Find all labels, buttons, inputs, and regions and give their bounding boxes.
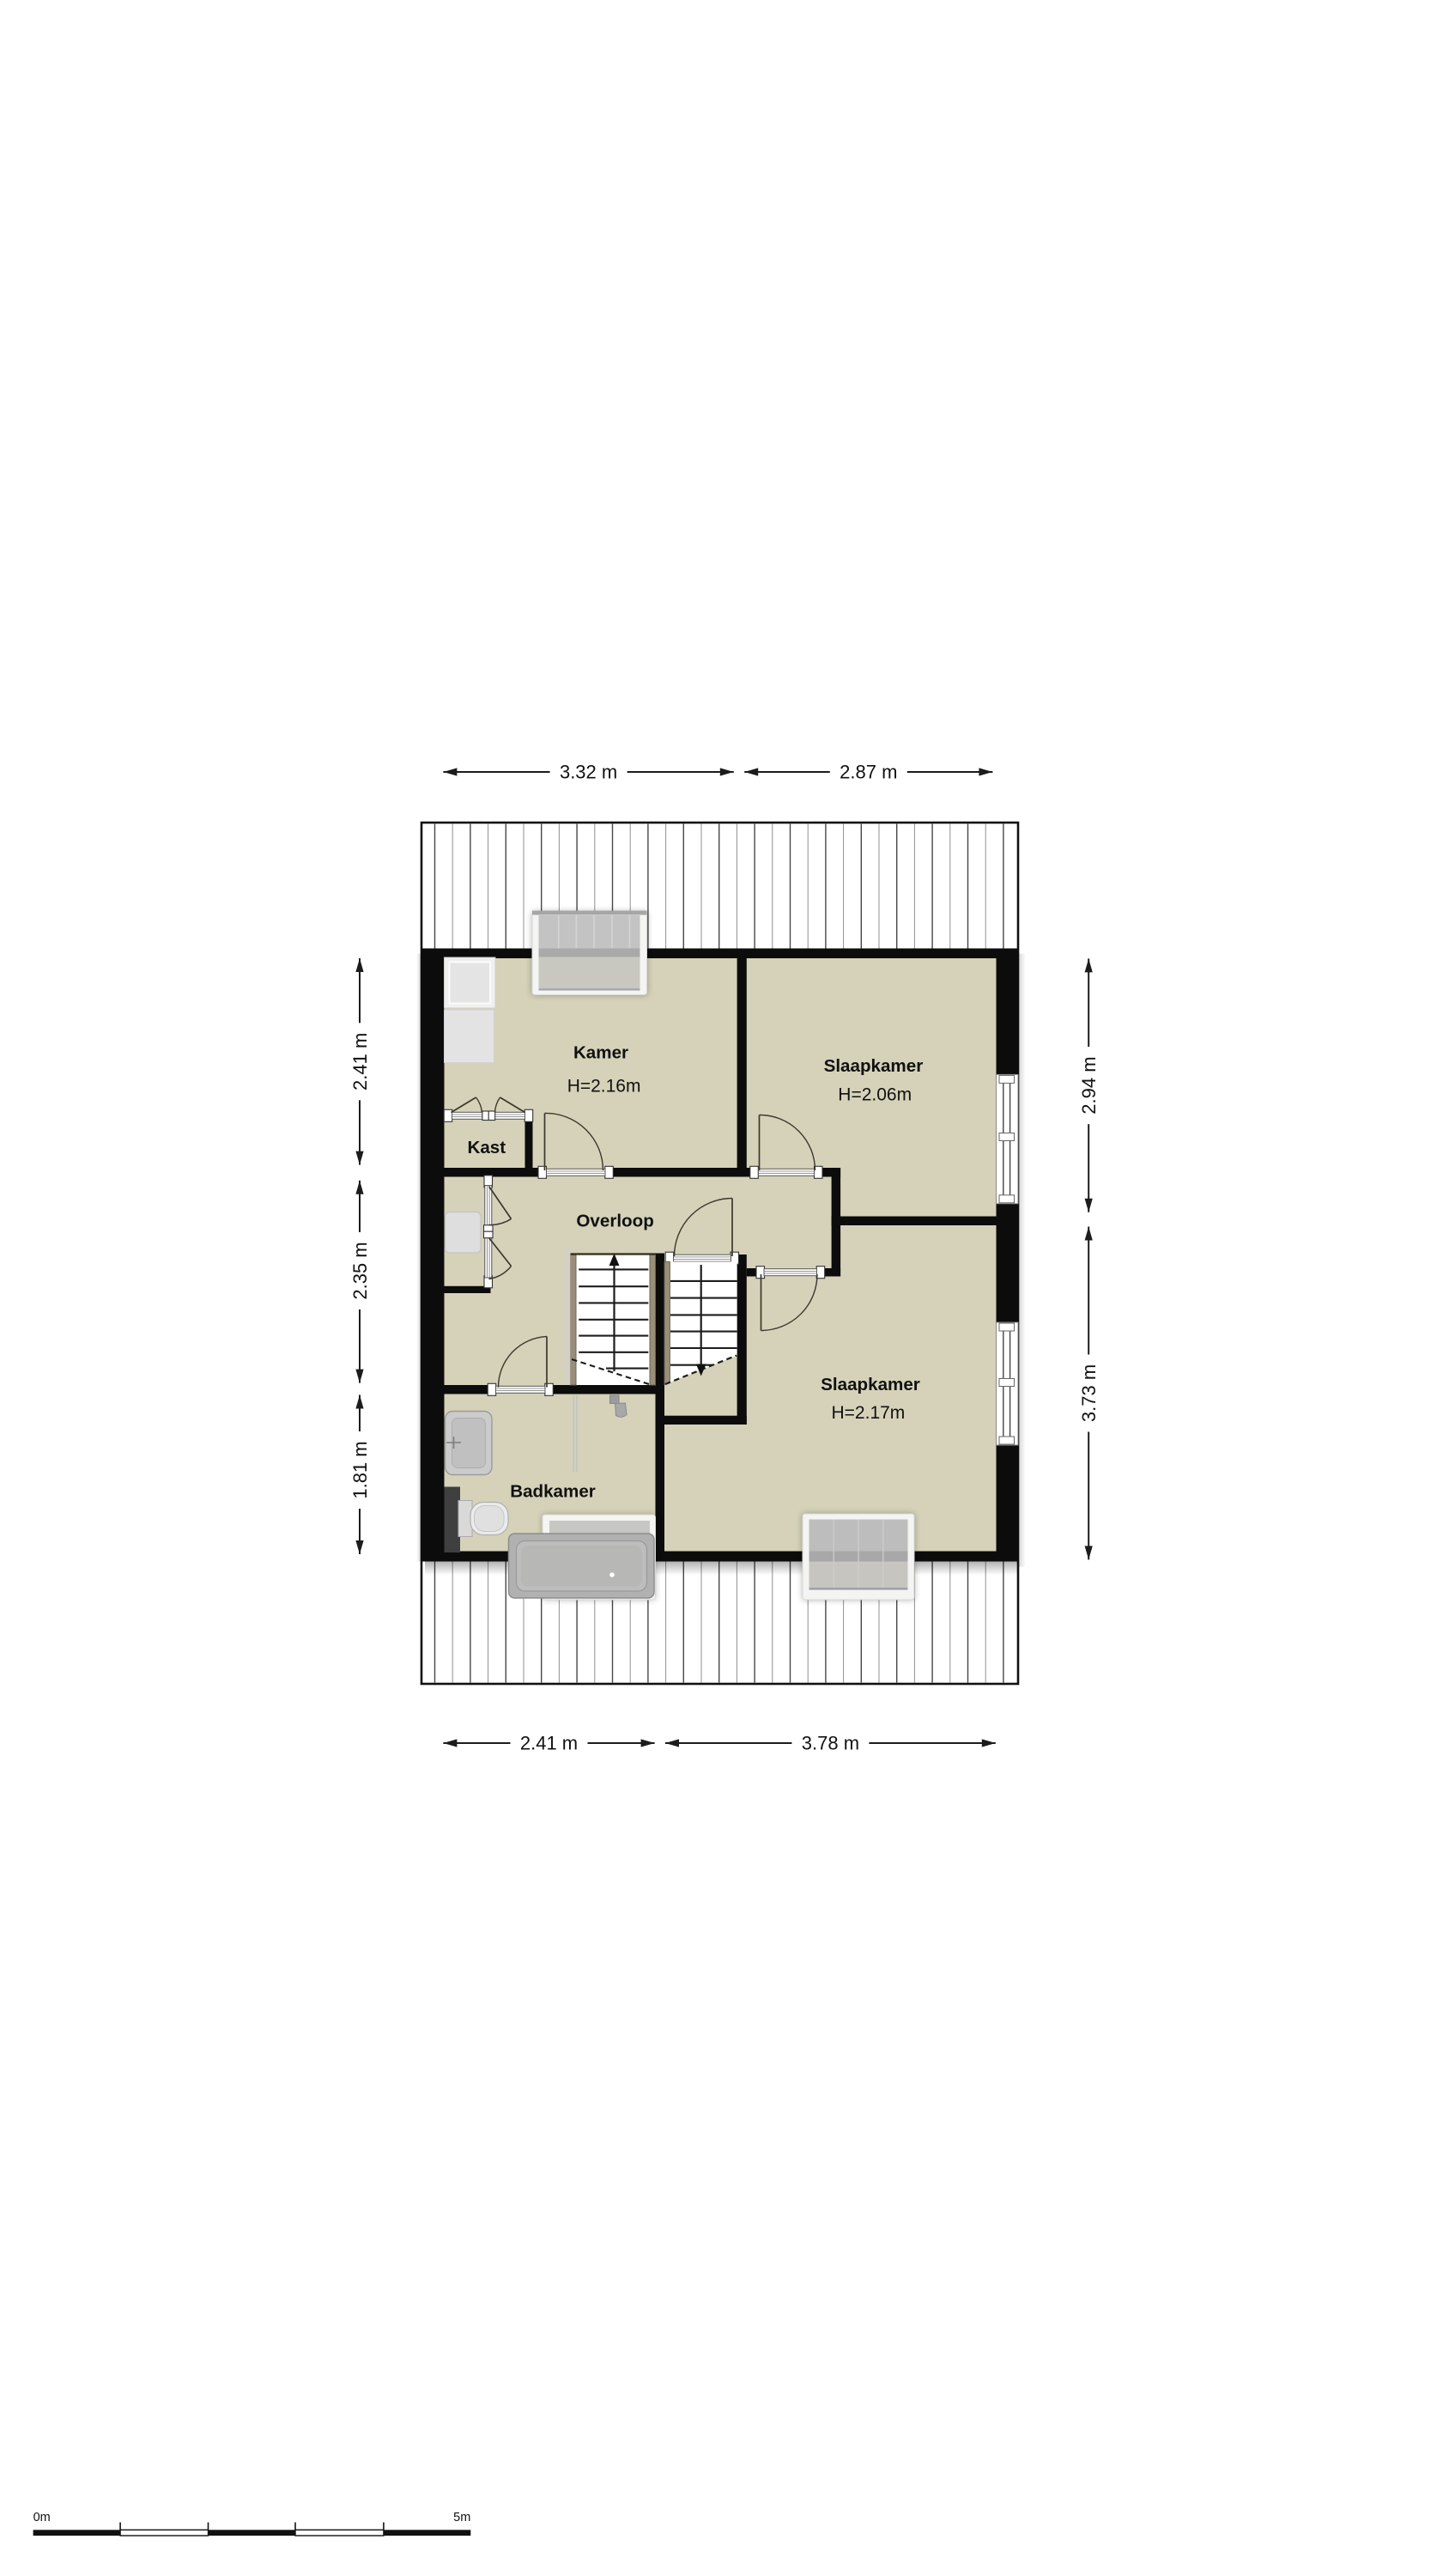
svg-text:Overloop: Overloop xyxy=(576,1212,653,1231)
svg-text:Kast: Kast xyxy=(467,1138,506,1157)
svg-text:H=2.17m: H=2.17m xyxy=(832,1403,906,1423)
svg-text:3.73 m: 3.73 m xyxy=(1078,1364,1100,1422)
svg-text:Badkamer: Badkamer xyxy=(510,1482,596,1502)
svg-text:3.32 m: 3.32 m xyxy=(560,762,617,783)
svg-text:0m: 0m xyxy=(33,2511,51,2524)
svg-text:Slaapkamer: Slaapkamer xyxy=(821,1375,920,1394)
svg-text:H=2.06m: H=2.06m xyxy=(838,1085,912,1105)
svg-text:1.81 m: 1.81 m xyxy=(349,1441,371,1498)
svg-text:2.41 m: 2.41 m xyxy=(349,1033,371,1091)
svg-text:Kamer: Kamer xyxy=(573,1043,628,1063)
svg-text:2.35 m: 2.35 m xyxy=(349,1242,371,1299)
svg-text:2.87 m: 2.87 m xyxy=(840,762,897,783)
svg-text:H=2.16m: H=2.16m xyxy=(567,1077,641,1097)
svg-text:5m: 5m xyxy=(453,2511,470,2524)
svg-text:2.41 m: 2.41 m xyxy=(520,1733,578,1754)
svg-text:3.78 m: 3.78 m xyxy=(802,1733,859,1754)
svg-text:2.94 m: 2.94 m xyxy=(1078,1056,1100,1114)
svg-text:Slaapkamer: Slaapkamer xyxy=(824,1056,924,1076)
